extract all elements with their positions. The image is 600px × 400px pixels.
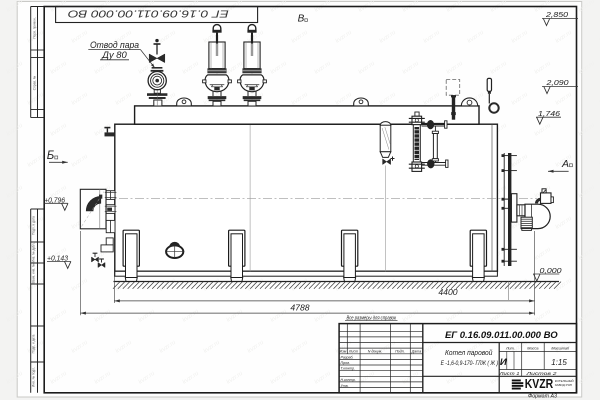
svg-text:+0,143: +0,143 (47, 256, 68, 263)
svg-text:Формат А3: Формат А3 (528, 394, 558, 400)
svg-text:0,000: 0,000 (540, 266, 562, 275)
svg-text:Справ. №: Справ. № (32, 75, 36, 90)
svg-text:ЕГ 0.16.09.011.00.000 ВО: ЕГ 0.16.09.011.00.000 ВО (445, 330, 558, 341)
svg-text:Т.контр.: Т.контр. (341, 367, 356, 371)
svg-text:Утв.: Утв. (341, 384, 349, 388)
svg-text:Инв. № дубл.: Инв. № дубл. (32, 243, 36, 263)
svg-text:Лит.: Лит. (505, 347, 515, 351)
svg-text:2,850: 2,850 (545, 10, 568, 19)
svg-text:А: А (561, 158, 569, 170)
svg-text:Подп.: Подп. (395, 349, 405, 353)
svg-text:Пров.: Пров. (341, 361, 350, 365)
svg-text:Лист 1: Лист 1 (498, 371, 520, 376)
svg-text:4788: 4788 (290, 303, 310, 312)
svg-text:Подп. и дата: Подп. и дата (32, 334, 36, 353)
svg-text:В: В (298, 14, 305, 25)
svg-text:Изм: Изм (340, 349, 347, 353)
svg-text:Подп. и дата: Подп. и дата (32, 216, 36, 235)
svg-text:Ду 80: Ду 80 (101, 50, 127, 60)
svg-text:Б: Б (47, 150, 55, 162)
svg-text:Взам. инв. №: Взам. инв. № (32, 263, 36, 283)
svg-text:1:15: 1:15 (551, 358, 567, 367)
svg-text:Н.контр.: Н.контр. (341, 378, 356, 382)
svg-text:2,090: 2,090 (545, 78, 568, 87)
svg-text:Котел паровой: Котел паровой (445, 348, 493, 357)
svg-text:4400: 4400 (438, 288, 458, 297)
svg-text:Дата: Дата (411, 349, 421, 353)
svg-text:N докум.: N докум. (368, 349, 383, 353)
svg-text:Разраб.: Разраб. (341, 355, 354, 359)
svg-text:Лист: Лист (348, 349, 358, 353)
svg-text:Е -1,6-0,9-170- ГЛЖ ( Ж ): Е -1,6-0,9-170- ГЛЖ ( Ж ) (441, 360, 498, 367)
svg-text:Отвод пара: Отвод пара (90, 40, 139, 50)
svg-text:И: И (500, 357, 507, 368)
svg-text:Инв. № подл.: Инв. № подл. (32, 367, 36, 387)
svg-text:ЗАВОД РЭП: ЗАВОД РЭП (555, 383, 572, 387)
svg-text:Масса: Масса (527, 347, 538, 351)
svg-text:ЕГ 0.16.09.011.00.000 ВО: ЕГ 0.16.09.011.00.000 ВО (67, 8, 229, 19)
svg-text:Масштаб: Масштаб (551, 347, 570, 351)
svg-text:1,746: 1,746 (538, 109, 560, 118)
svg-text:+0,796: +0,796 (44, 198, 65, 205)
svg-text:KVZR: KVZR (525, 376, 554, 391)
svg-text:Перв. примен.: Перв. примен. (32, 17, 36, 38)
